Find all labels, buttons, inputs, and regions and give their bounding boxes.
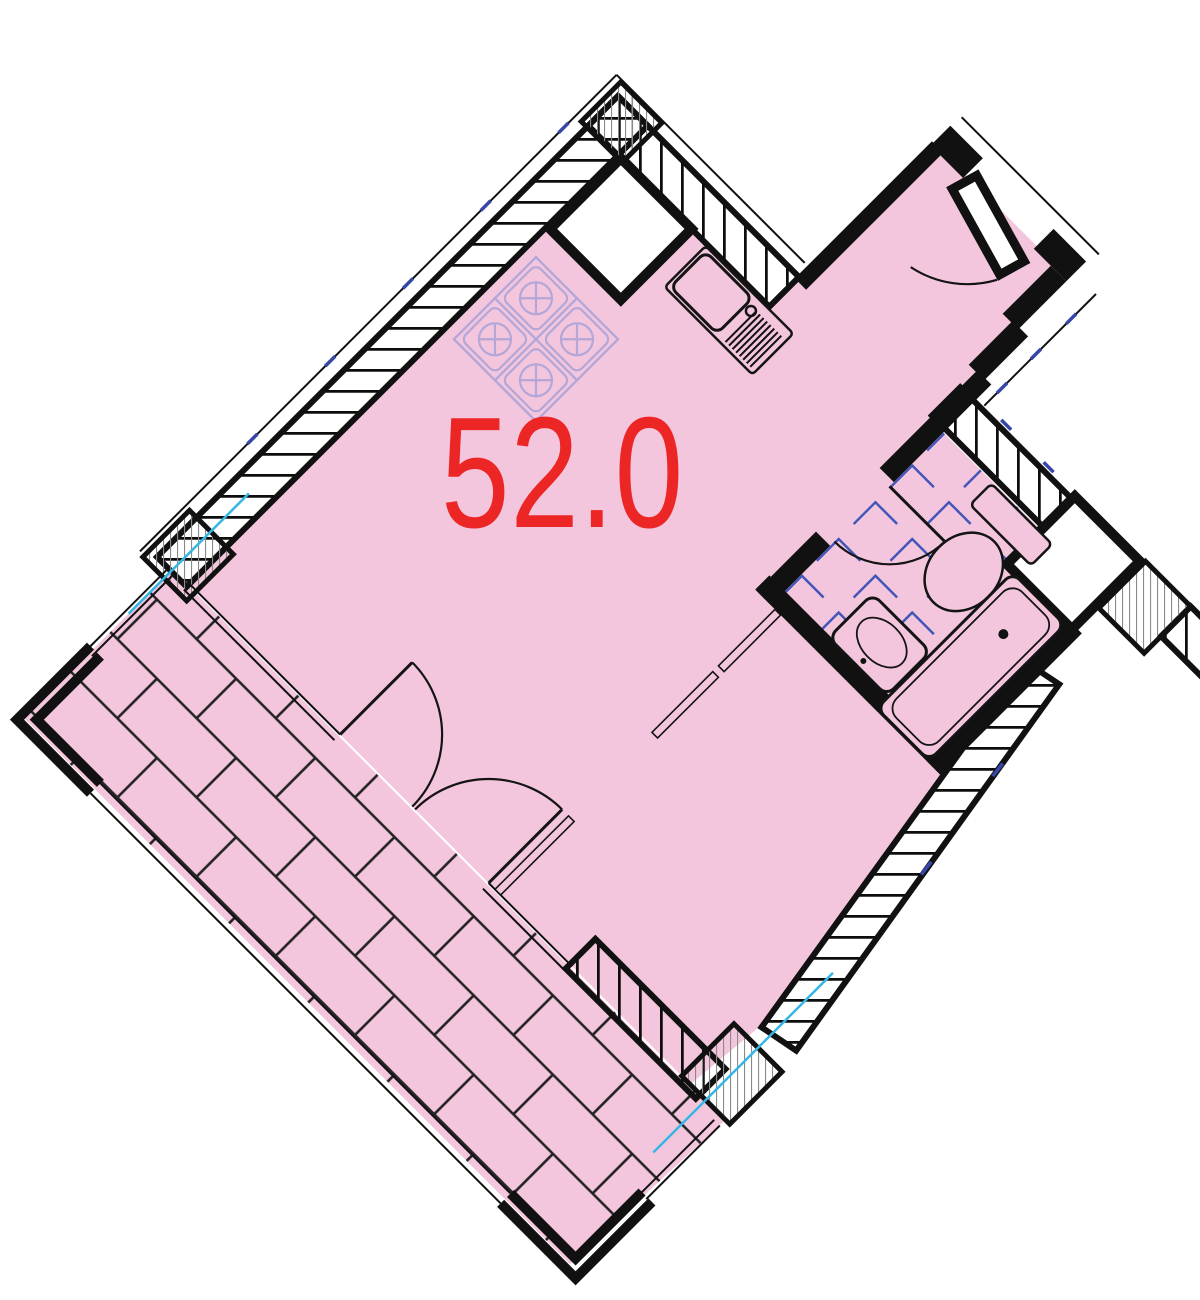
- floor-plan-page: 52.0: [0, 0, 1200, 1300]
- floor-plan-drawing: [0, 0, 1200, 1300]
- area-label: 52.0: [441, 394, 684, 552]
